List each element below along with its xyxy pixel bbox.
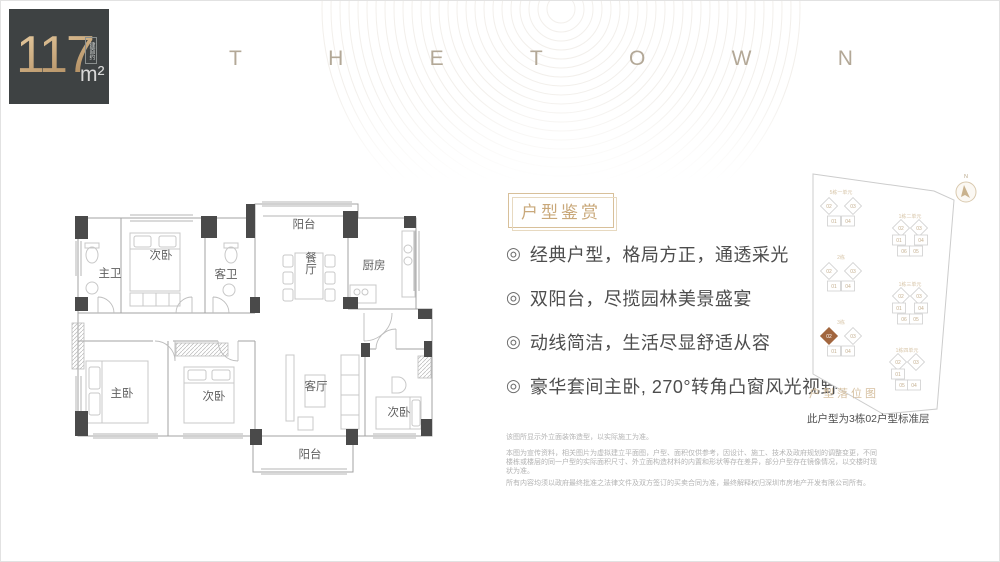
unit-number: 05 xyxy=(899,383,905,389)
cluster-label: 1栋二单元 xyxy=(899,213,922,220)
brand-letter: E xyxy=(430,47,444,71)
features-title: 户型鉴赏 xyxy=(521,203,601,222)
unit-number: 02 xyxy=(826,334,832,340)
room-label-balcony-bottom: 阳台 xyxy=(299,447,322,461)
compass-label: N xyxy=(964,174,968,180)
unit-number: 01 xyxy=(896,238,902,244)
unit-number: 04 xyxy=(918,238,924,244)
disclaimer: 该图所显示外立面装饰造型，以实际施工为准。 本图为宣传资料，相关图片为虚拟建立平… xyxy=(506,433,878,488)
room-label-kitchen: 厨房 xyxy=(363,259,386,272)
siteplan-boundary xyxy=(813,174,954,414)
brand-letter: T xyxy=(530,47,543,71)
unit-number: 03 xyxy=(850,204,856,210)
unit-number: 02 xyxy=(898,294,904,300)
floorplan-windows xyxy=(76,202,419,474)
unit-number: 03 xyxy=(850,334,856,340)
brand-letter: W xyxy=(732,47,752,71)
unit-number: 04 xyxy=(911,383,917,389)
unit-number: 01 xyxy=(895,372,901,378)
brand-letter: N xyxy=(838,47,853,71)
unit-number: 05 xyxy=(913,317,919,323)
unit-number: 05 xyxy=(913,249,919,255)
room-label-guest-bath: 客卫 xyxy=(215,267,238,281)
room-label-master-bath: 主卫 xyxy=(99,267,122,280)
room-label-master-bedroom: 主卧 xyxy=(111,387,134,400)
cluster-label: 1栋四单元 xyxy=(896,347,919,354)
unit-number: 03 xyxy=(850,269,856,275)
cluster-label: 1栋三单元 xyxy=(899,281,922,288)
brand-letter: O xyxy=(629,47,645,71)
unit-number: 04 xyxy=(918,306,924,312)
feature-text: 动线简洁，生活尽显舒适从容 xyxy=(530,329,771,355)
unit-number: 02 xyxy=(826,204,832,210)
floorplan-drawing: 阳台 次卧 主卫 客卫 餐厅 厨房 主卧 次卧 客厅 次卧 阳台 xyxy=(58,191,448,481)
unit-number: 02 xyxy=(826,269,832,275)
feature-text: 双阳台，尽揽园林美景盛宴 xyxy=(530,285,752,311)
disclaimer-line3: 所有内容均须以政府最终批准之法律文件及双方签订的买卖合同为准，最终解释权归深圳市… xyxy=(506,479,878,488)
compass-icon: N xyxy=(956,174,976,202)
unit-number: 04 xyxy=(845,219,851,225)
room-label-balcony-top: 阳台 xyxy=(293,217,316,231)
feature-item: ◎ 动线简洁，生活尽显舒适从容 xyxy=(506,329,836,355)
room-label-living: 客厅 xyxy=(305,379,328,393)
disclaimer-paragraph: 本图为宣传资料，相关图片为虚拟建立平面图，户型、面积仅供参考，因设计、施工、技术… xyxy=(506,449,878,476)
bullet-icon: ◎ xyxy=(506,332,521,352)
feature-item: ◎ 豪华套间主卧, 270°转角凸窗风光视野 xyxy=(506,373,836,399)
unit-number: 04 xyxy=(845,349,851,355)
unit-number: 01 xyxy=(896,306,902,312)
unit-number: 06 xyxy=(901,317,907,323)
cluster-label: 2栋 xyxy=(837,254,845,261)
brand-letter: T xyxy=(229,47,242,71)
unit-number: 01 xyxy=(831,349,837,355)
brand-wordmark: THETOWN xyxy=(229,47,853,71)
brand-letter: H xyxy=(328,47,343,71)
cluster-label: 5栋一单元 xyxy=(830,189,853,196)
unit-number: 03 xyxy=(913,360,919,366)
unit-number: 06 xyxy=(901,249,907,255)
feature-text: 经典户型，格局方正，通透采光 xyxy=(530,241,789,267)
unit-number: 03 xyxy=(916,294,922,300)
brochure-page: THETOWN 117 建面约 m² xyxy=(0,0,1000,562)
unit-number: 01 xyxy=(831,284,837,290)
unit-number: 02 xyxy=(895,360,901,366)
room-label-bedroom3: 次卧 xyxy=(203,389,226,403)
area-note: 建面约 xyxy=(85,37,97,64)
features-title-box: 户型鉴赏 xyxy=(508,193,614,228)
room-label-bedroom4: 次卧 xyxy=(388,405,411,419)
floorplan-wall-piers xyxy=(75,204,432,445)
area-unit: m² xyxy=(80,63,105,87)
unit-number: 01 xyxy=(831,219,837,225)
feature-item: ◎ 双阳台，尽揽园林美景盛宴 xyxy=(506,285,836,311)
room-label-dining: 餐厅 xyxy=(304,251,317,275)
bullet-icon: ◎ xyxy=(506,244,521,264)
unit-number: 03 xyxy=(916,226,922,232)
feature-text: 豪华套间主卧, 270°转角凸窗风光视野 xyxy=(530,373,839,399)
siteplan-caption: 户型落位图 xyxy=(809,385,879,401)
room-label-bedroom2: 次卧 xyxy=(150,248,173,262)
area-badge: 117 建面约 m² xyxy=(9,9,109,104)
feature-item: ◎ 经典户型，格局方正，通透采光 xyxy=(506,241,836,267)
bay-window-hatch xyxy=(72,323,431,378)
cluster-label: 3栋 xyxy=(837,319,845,326)
unit-number: 02 xyxy=(898,226,904,232)
bullet-icon: ◎ xyxy=(506,376,521,396)
siteplan-note: 此户型为3栋02户型标准层 xyxy=(807,411,930,426)
bullet-icon: ◎ xyxy=(506,288,521,308)
unit-number: 04 xyxy=(845,284,851,290)
